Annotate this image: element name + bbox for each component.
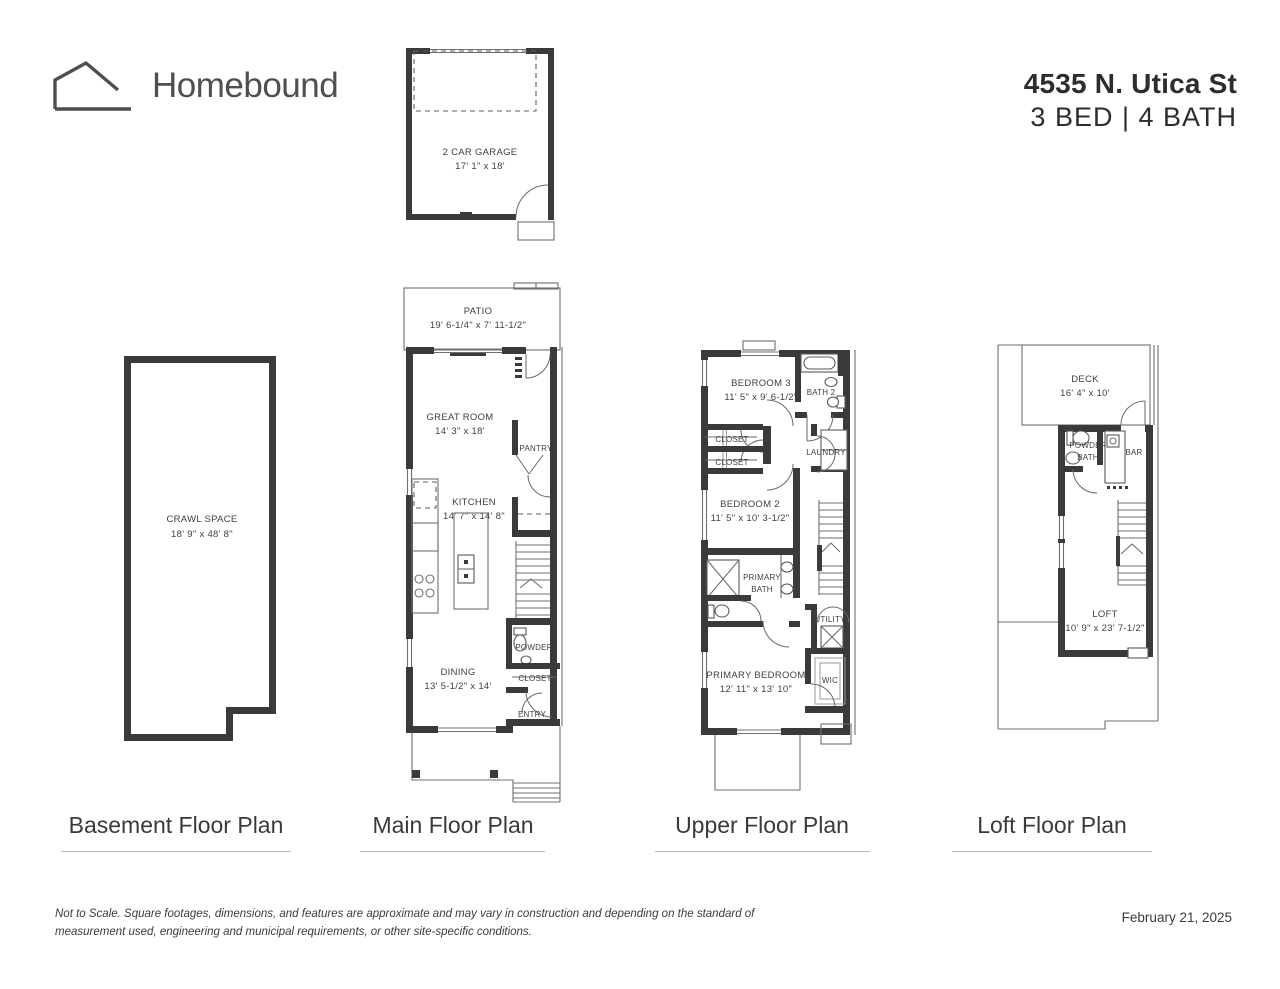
loft-plan-drawing: DECK 16' 4" x 10' POWDER BATH: [993, 336, 1223, 738]
bar-counter: [1105, 431, 1128, 489]
room-dims-deck: 16' 4" x 10': [1060, 388, 1110, 399]
room-label-primary-bath-1: PRIMARY: [743, 573, 781, 582]
garage-plan-drawing: 2 CAR GARAGE 17' 1" x 18': [398, 42, 562, 244]
pantry-walls: [512, 420, 550, 497]
house-icon: [52, 60, 134, 112]
deck-outline: [1022, 345, 1150, 425]
room-dims-crawl-space: 18' 9" x 48' 8": [171, 529, 233, 540]
primary-bath-fixtures: [701, 548, 800, 647]
caption-loft-plan: Loft Floor Plan: [902, 812, 1202, 839]
caption-underline-main: [360, 851, 545, 852]
room-label-primary-bedroom: PRIMARY BEDROOM: [706, 670, 805, 681]
room-dims-garage: 17' 1" x 18': [455, 161, 505, 172]
hall-doors: [741, 400, 793, 490]
room-label-bath2: BATH 2: [807, 388, 836, 397]
caption-underline-loft: [952, 851, 1152, 852]
basement-plan-drawing: CRAWL SPACE 18' 9" x 48' 8": [116, 348, 288, 748]
room-label-bar: BAR: [1125, 448, 1142, 457]
room-dims-dining: 13' 5-1/2" x 14': [424, 681, 491, 692]
room-dims-primary-bedroom: 12' 11" x 13' 10": [720, 684, 792, 695]
title-block: 4535 N. Utica St 3 BED | 4 BATH: [1024, 68, 1237, 133]
room-label-loft: LOFT: [1092, 609, 1117, 620]
room-label-loft-powder-1: POWDER: [1069, 441, 1106, 450]
room-label-closet: CLOSET: [518, 674, 551, 683]
bed-bath-specs: 3 BED | 4 BATH: [1024, 102, 1237, 133]
room-label-closet1: CLOSET: [715, 435, 748, 444]
room-label-entry: ENTRY: [518, 710, 546, 719]
room-label-bedroom2: BEDROOM 2: [720, 499, 780, 510]
room-label-utility: UTILITY: [814, 615, 846, 624]
room-label-pantry: PANTRY: [520, 444, 553, 453]
room-label-bedroom3: BEDROOM 3: [731, 378, 791, 389]
room-label-loft-powder-2: BATH: [1077, 453, 1099, 462]
room-label-laundry: LAUNDRY: [806, 448, 846, 457]
room-label-closet2: CLOSET: [715, 458, 748, 467]
document-date: February 21, 2025: [1122, 910, 1232, 925]
garage-door-zone: [414, 51, 536, 111]
room-dims-loft: 10' 9" x 23' 7-1/2": [1065, 623, 1144, 634]
caption-underline-upper: [655, 851, 870, 852]
room-label-kitchen: KITCHEN: [452, 497, 496, 508]
room-label-garage: 2 CAR GARAGE: [443, 147, 518, 158]
room-dims-bedroom2: 11' 5" x 10' 3-1/2": [711, 513, 790, 524]
room-label-crawl-space: CRAWL SPACE: [166, 514, 237, 525]
brand-name: Homebound: [152, 66, 338, 106]
room-label-wic: WIC: [822, 676, 838, 685]
room-dims-patio: 19' 6-1/4" x 7' 11-1/2": [430, 320, 526, 331]
caption-basement-plan: Basement Floor Plan: [26, 812, 326, 839]
main-stairs: [516, 541, 550, 621]
kitchen-island: [454, 513, 488, 609]
room-label-powder: POWDER: [515, 643, 552, 652]
garage-door-arc: [516, 185, 548, 217]
hall-closet: [512, 497, 556, 537]
room-dims-great-room: 14' 3" x 18': [435, 426, 485, 437]
room-label-great-room: GREAT ROOM: [426, 412, 493, 423]
caption-main-plan: Main Floor Plan: [303, 812, 603, 839]
room-label-primary-bath-2: BATH: [751, 585, 773, 594]
room-label-dining: DINING: [440, 667, 475, 678]
loft-stairs: [1116, 500, 1146, 585]
room-label-deck: DECK: [1071, 374, 1099, 385]
homebound-logo: Homebound: [52, 60, 338, 112]
garage-walls: [406, 48, 554, 220]
caption-underline-basement: [61, 851, 291, 852]
kitchen-counter: [412, 479, 438, 613]
page-title: 4535 N. Utica St: [1024, 68, 1237, 100]
basement-walls: [124, 356, 276, 741]
front-porch: [412, 726, 560, 802]
room-label-patio: PATIO: [464, 306, 493, 317]
bedroom2-wall: [793, 468, 800, 598]
disclaimer-text: Not to Scale. Square footages, dimension…: [55, 906, 800, 942]
caption-upper-plan: Upper Floor Plan: [612, 812, 912, 839]
main-plan-drawing: PATIO 19' 6-1/4" x 7' 11-1/2": [398, 283, 570, 805]
upper-stairs: [817, 500, 843, 595]
great-room-door: [515, 354, 550, 378]
utility-room: [805, 604, 849, 650]
powder-room: [506, 618, 556, 664]
floor-plan-sheet: Homebound 4535 N. Utica St 3 BED | 4 BAT…: [0, 0, 1280, 989]
upper-plan-drawing: BEDROOM 3 11' 5" x 9' 6-1/2" BATH 2: [693, 340, 868, 798]
garage-stoop: [518, 222, 554, 240]
room-dims-bedroom3: 11' 5" x 9' 6-1/2": [724, 392, 797, 403]
